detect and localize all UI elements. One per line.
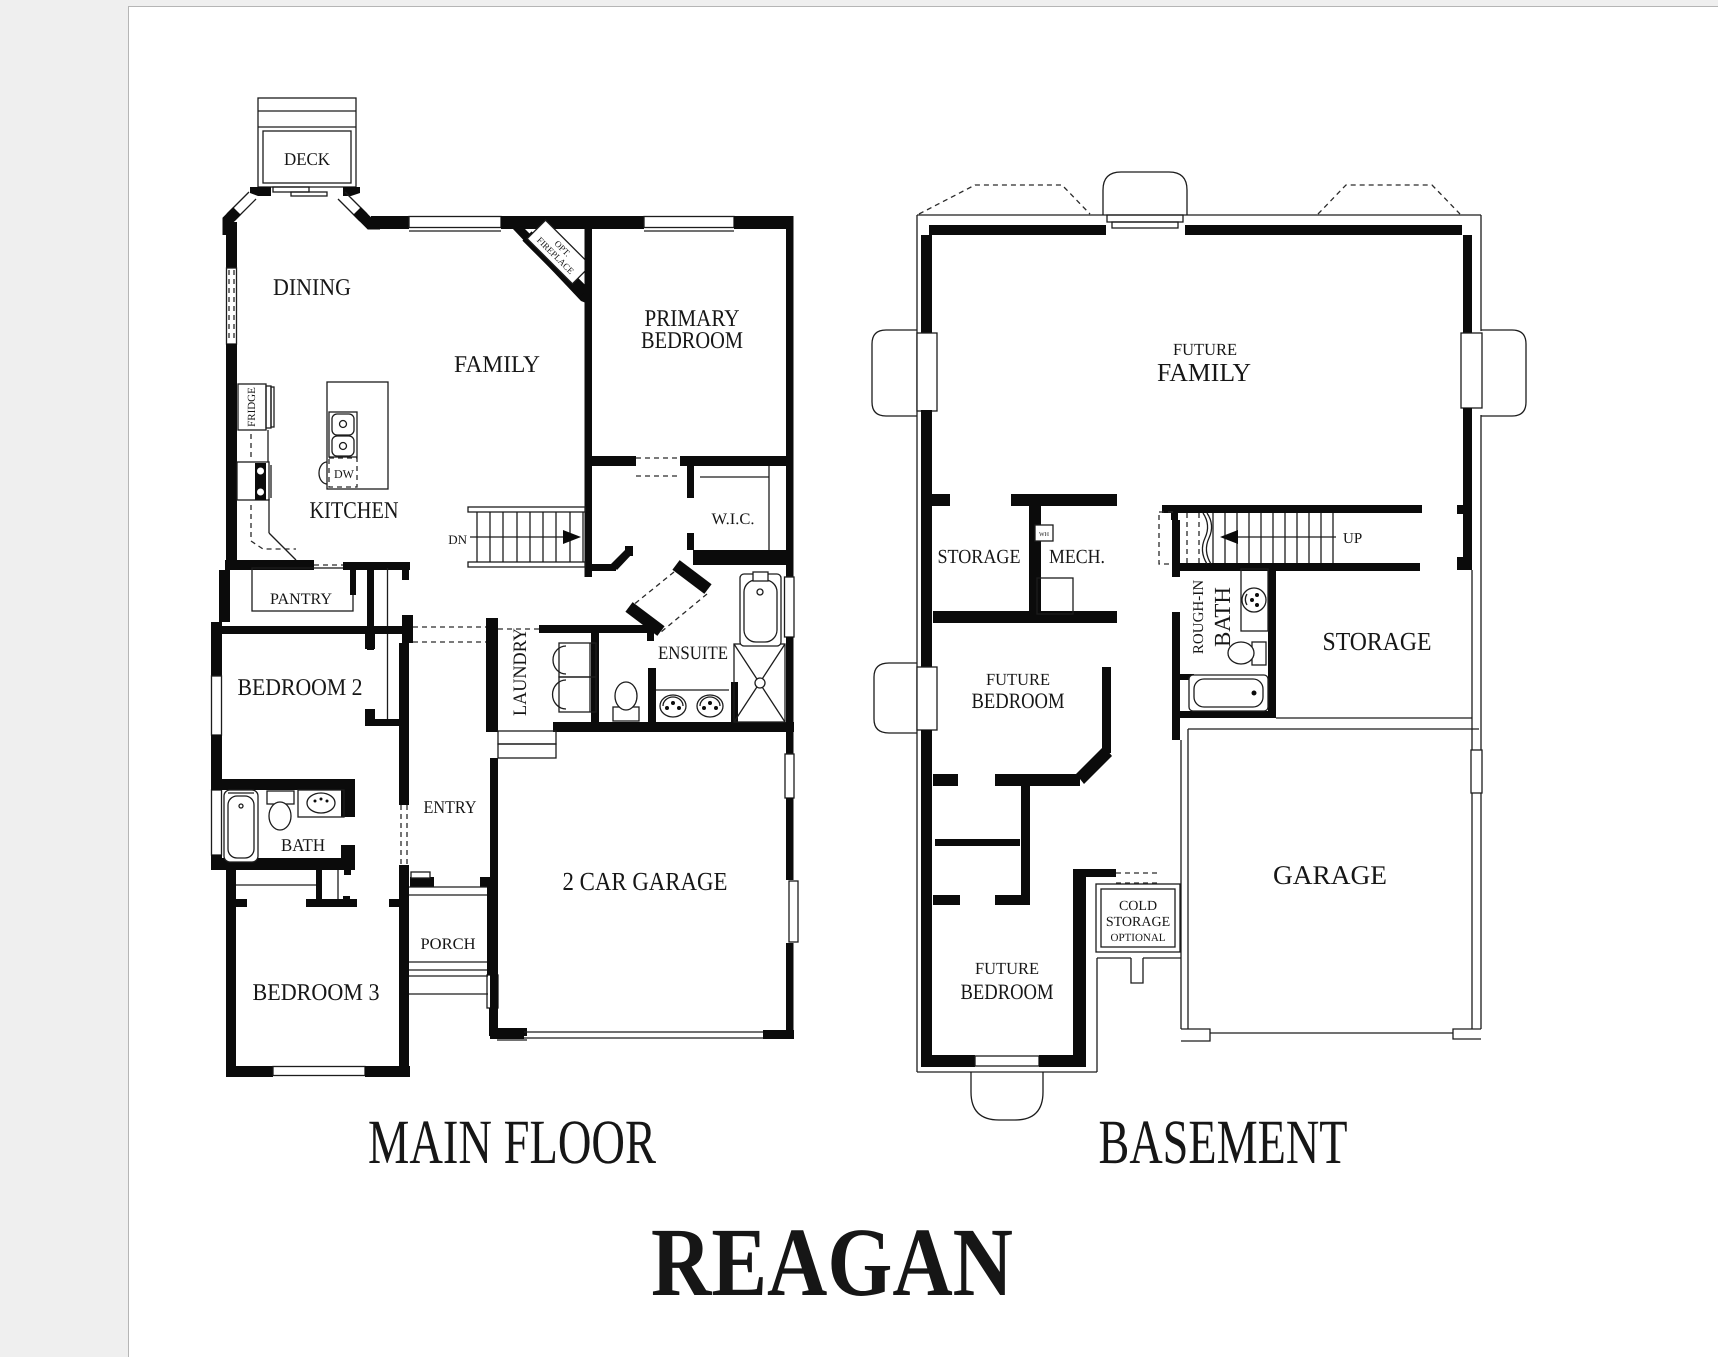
svg-text:DN: DN: [448, 532, 467, 547]
svg-text:PORCH: PORCH: [421, 936, 476, 953]
svg-text:FUTURE: FUTURE: [1173, 340, 1237, 359]
svg-text:BATH: BATH: [1210, 587, 1235, 647]
svg-text:COLD: COLD: [1119, 899, 1157, 914]
svg-text:FUTURE: FUTURE: [986, 670, 1050, 689]
svg-text:KITCHEN: KITCHEN: [310, 498, 399, 524]
svg-text:ROUGH-IN: ROUGH-IN: [1191, 580, 1207, 654]
svg-text:WH: WH: [1039, 532, 1050, 538]
svg-text:FAMILY: FAMILY: [1157, 358, 1251, 387]
svg-text:BASEMENT: BASEMENT: [1099, 1107, 1348, 1177]
svg-text:DW: DW: [334, 467, 355, 481]
svg-text:MECH.: MECH.: [1049, 546, 1105, 568]
svg-text:STORAGE: STORAGE: [938, 546, 1021, 568]
svg-text:BEDROOM: BEDROOM: [641, 328, 743, 354]
svg-text:BATH: BATH: [281, 835, 325, 855]
svg-text:UP: UP: [1343, 531, 1362, 547]
svg-text:OPTIONAL: OPTIONAL: [1111, 932, 1166, 944]
svg-text:BEDROOM 2: BEDROOM 2: [238, 675, 363, 701]
svg-text:ENTRY: ENTRY: [424, 797, 477, 817]
svg-text:STORAGE: STORAGE: [1323, 627, 1432, 656]
svg-text:BEDROOM: BEDROOM: [961, 979, 1054, 1004]
svg-text:MAIN FLOOR: MAIN FLOOR: [368, 1107, 656, 1177]
svg-text:2 CAR GARAGE: 2 CAR GARAGE: [563, 867, 728, 896]
svg-text:LAUNDRY: LAUNDRY: [510, 628, 531, 716]
svg-text:W.I.C.: W.I.C.: [712, 511, 755, 528]
svg-text:BEDROOM: BEDROOM: [972, 688, 1065, 713]
svg-text:ENSUITE: ENSUITE: [658, 643, 728, 664]
svg-text:REAGAN: REAGAN: [651, 1209, 1013, 1317]
svg-text:DECK: DECK: [284, 149, 330, 169]
svg-text:FRIDGE: FRIDGE: [246, 387, 258, 427]
svg-text:GARAGE: GARAGE: [1273, 860, 1387, 890]
svg-text:BEDROOM 3: BEDROOM 3: [253, 980, 380, 1006]
svg-text:FAMILY: FAMILY: [454, 352, 540, 378]
svg-text:STORAGE: STORAGE: [1106, 915, 1170, 930]
svg-text:FUTURE: FUTURE: [975, 959, 1039, 978]
svg-text:DINING: DINING: [273, 275, 351, 301]
svg-text:PANTRY: PANTRY: [270, 591, 332, 608]
